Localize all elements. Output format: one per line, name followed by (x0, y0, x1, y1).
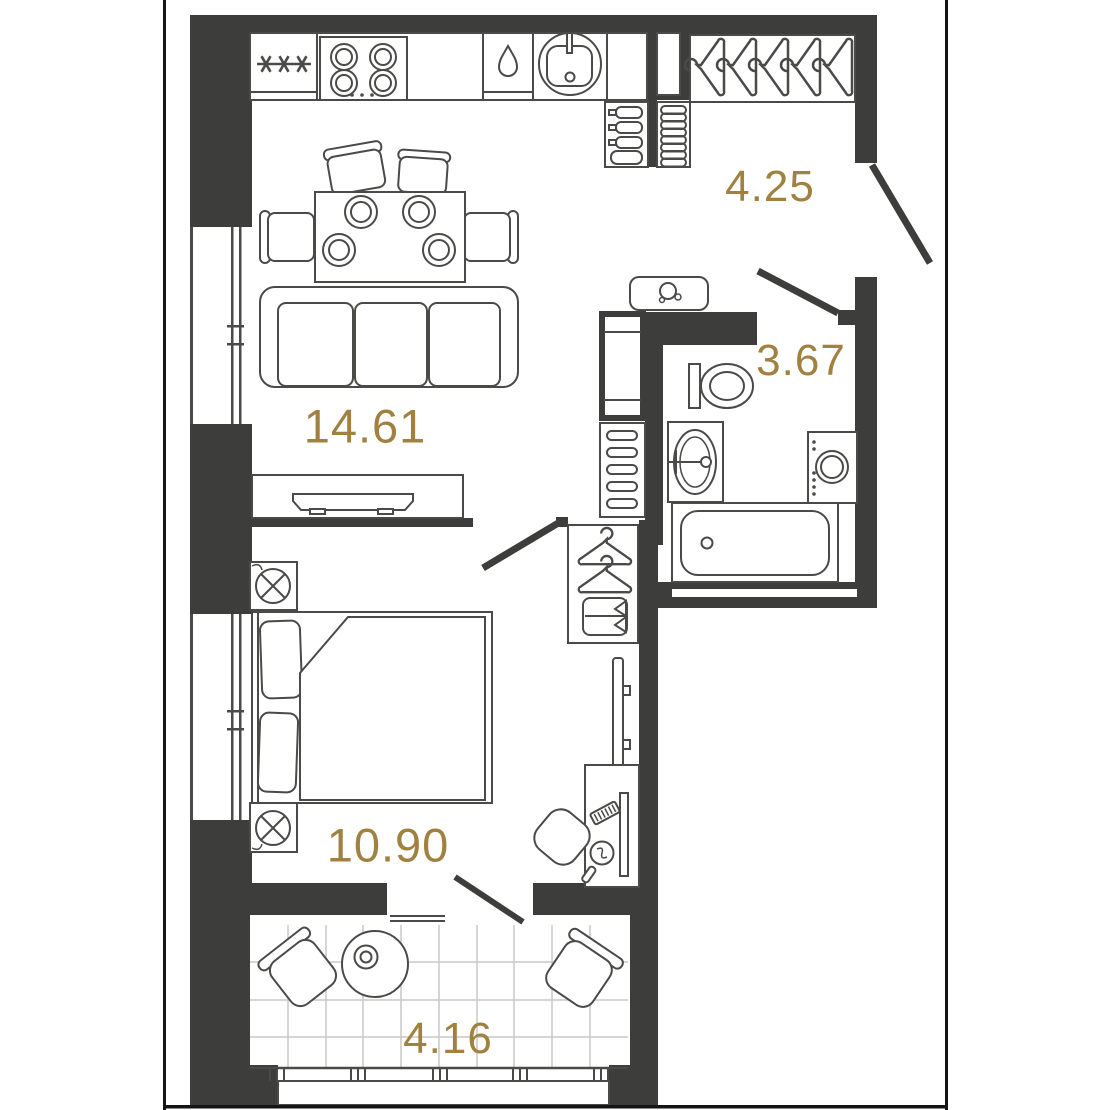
area-label-bedroom: 10.90 (327, 822, 450, 869)
blanket (300, 617, 485, 800)
bottle-rack-icon (605, 102, 648, 167)
nightstand (250, 803, 297, 852)
vent-shaft (657, 33, 680, 95)
washing-machine-icon (808, 432, 857, 503)
balcony-door-sill (390, 916, 445, 921)
toilet-icon (689, 364, 753, 408)
area-label-bathroom: 3.67 (756, 339, 846, 383)
dining-table (315, 192, 465, 282)
dining-chair (396, 149, 451, 195)
entry-door-leaf (872, 165, 930, 263)
frame-left (163, 0, 166, 1110)
balcony-table (342, 931, 408, 997)
dining-chair (464, 211, 518, 263)
water-heater-icon (630, 277, 708, 310)
bedroom-tv-icon (613, 658, 630, 777)
balcony-glazing (250, 1068, 628, 1105)
hall-cabinet (602, 314, 643, 418)
sofa (260, 287, 518, 387)
frame-bottom (163, 1105, 948, 1109)
floorplan-drawing (0, 0, 1110, 1110)
area-label-hallway: 4.25 (725, 165, 815, 209)
pillow-icon (258, 712, 299, 792)
towel-rack-cabinet (600, 423, 645, 517)
bedroom-closet (568, 525, 638, 643)
dining-chair (323, 140, 388, 195)
hall-wardrobe (685, 35, 855, 102)
frame-right (945, 0, 948, 1110)
tv-console (252, 475, 463, 518)
double-bed (252, 612, 492, 803)
dining-chair (260, 211, 314, 263)
vanity-table (581, 765, 639, 887)
bathroom-sink-icon (667, 422, 723, 502)
nightstand (250, 562, 297, 610)
tv-icon (293, 494, 413, 510)
bedroom-door-leaf (483, 522, 560, 568)
window-living-icon (190, 227, 244, 424)
pillow-icon (260, 620, 303, 698)
stove-icon (320, 37, 407, 100)
area-label-kitchen-living: 14.61 (304, 403, 427, 450)
shoe-rack-icon (657, 102, 690, 167)
area-label-balcony: 4.16 (403, 1017, 493, 1061)
bathroom-door-leaf (758, 271, 838, 313)
floorplan-canvas: 14.61 10.90 4.25 3.67 4.16 (0, 0, 1110, 1110)
bathtub-icon (672, 503, 838, 582)
window-bedroom-icon (190, 614, 244, 820)
balcony-door-leaf (455, 877, 523, 922)
mirror-icon (620, 793, 628, 876)
